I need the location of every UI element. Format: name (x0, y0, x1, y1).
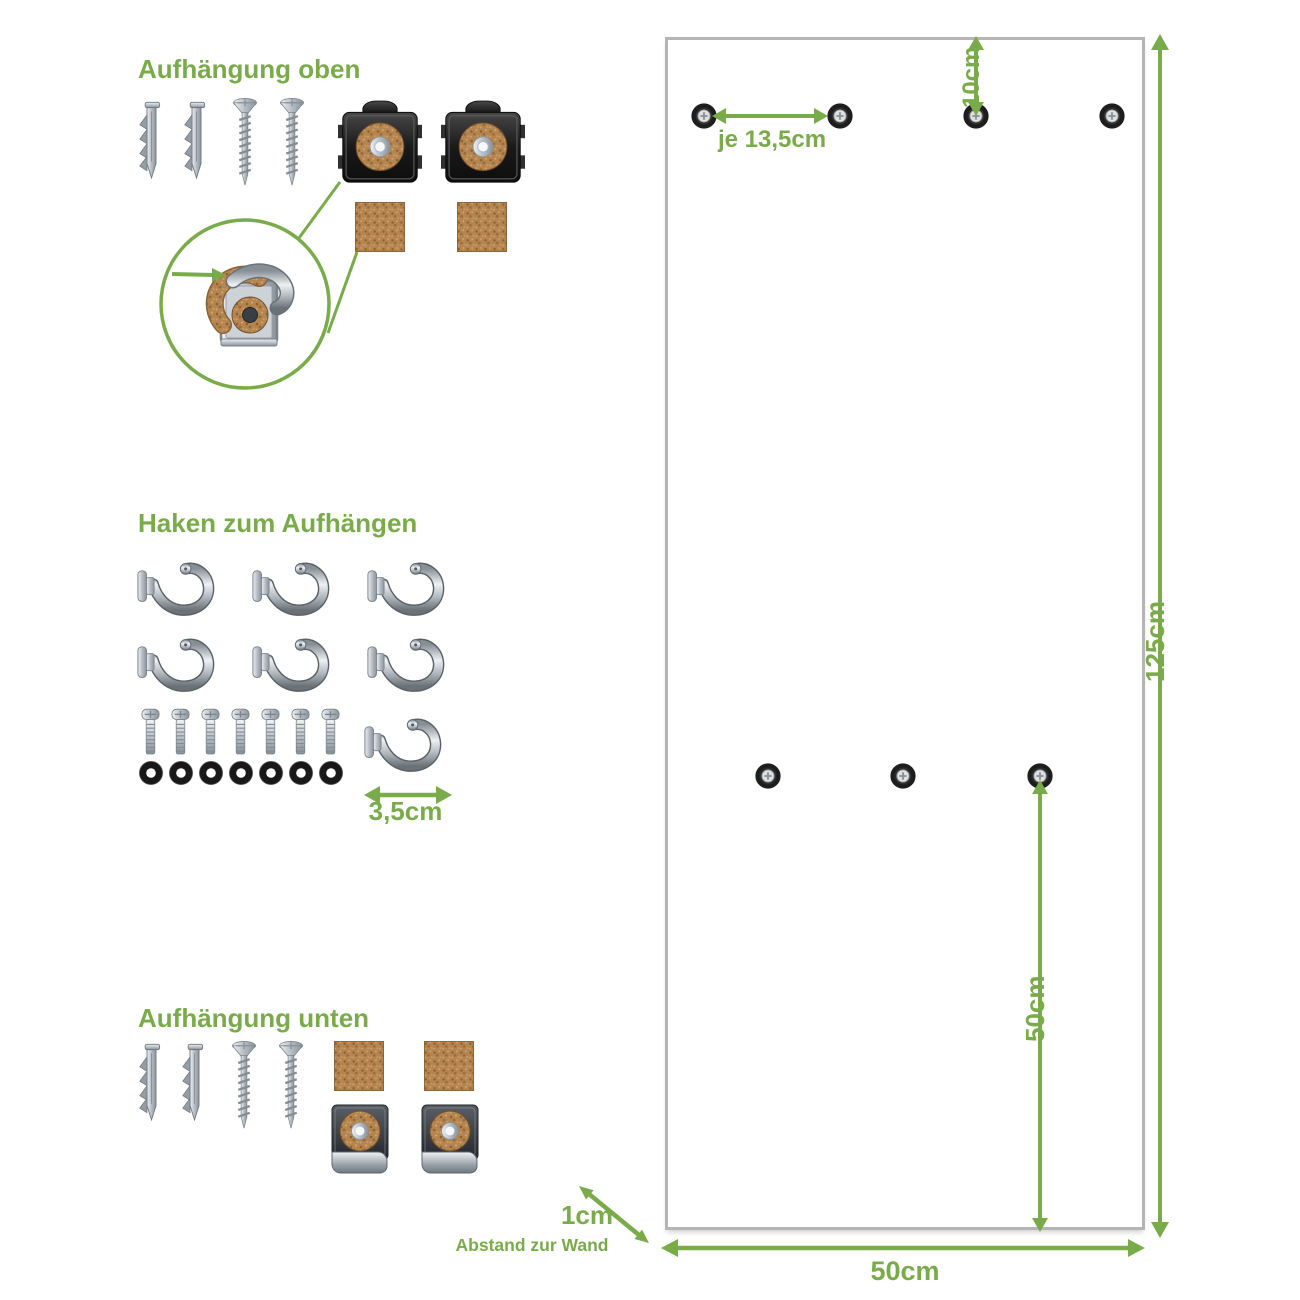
panel-outline (665, 37, 1145, 1230)
panel-height-label: 125cm (1142, 601, 1168, 682)
wood-screw-icon (278, 1040, 304, 1132)
panel-width-label: 50cm (845, 1258, 965, 1285)
machine-bolt-icon (260, 708, 281, 758)
hook-icon (251, 633, 335, 695)
o-ring-icon (318, 760, 344, 786)
top-offset-label: 10cm (960, 47, 984, 108)
hook-width-label: 3,5cm (358, 798, 453, 824)
mounting-clip-bottom-icon (419, 1104, 481, 1180)
section-title-top-mount: Aufhängung oben (138, 55, 360, 84)
wall-gap-value: 1cm (557, 1202, 617, 1228)
machine-bolt-icon (290, 708, 311, 758)
installation-diagram: Aufhängung oben Haken zum Aufhängen (0, 0, 1300, 1300)
o-ring-icon (168, 760, 194, 786)
section-title-hooks: Haken zum Aufhängen (138, 509, 417, 538)
wood-screw-icon (231, 1040, 257, 1132)
cork-pad-icon (334, 1041, 384, 1091)
machine-bolt-icon (140, 708, 161, 758)
hook-icon (136, 557, 220, 619)
drill-hole-icon (754, 762, 782, 790)
hook-icon (366, 557, 450, 619)
mounting-clip-top-icon (441, 100, 525, 184)
middle-hole-height-label: 50cm (1022, 976, 1048, 1043)
drill-hole-icon (889, 762, 917, 790)
o-ring-icon (138, 760, 164, 786)
machine-bolt-icon (320, 708, 341, 758)
drill-hole-icon (1098, 102, 1126, 130)
o-ring-icon (288, 760, 314, 786)
hook-icon (363, 713, 447, 775)
wall-plug-icon (138, 1041, 165, 1125)
section-title-bottom-mount: Aufhängung unten (138, 1004, 369, 1033)
wall-plug-icon (181, 1041, 208, 1125)
hook-icon (251, 557, 335, 619)
mounting-clip-bottom-icon (329, 1104, 391, 1180)
cork-pad-icon (424, 1041, 474, 1091)
cork-pad-icon (457, 202, 507, 252)
drill-hole-icon (826, 102, 854, 130)
o-ring-icon (198, 760, 224, 786)
wall-gap-caption: Abstand zur Wand (446, 1237, 618, 1255)
hook-icon (366, 633, 450, 695)
o-ring-icon (228, 760, 254, 786)
machine-bolt-icon (230, 708, 251, 758)
machine-bolt-icon (200, 708, 221, 758)
hole-spacing-label: je 13,5cm (712, 128, 832, 152)
o-ring-icon (258, 760, 284, 786)
machine-bolt-icon (170, 708, 191, 758)
hook-icon (136, 633, 220, 695)
detail-pointer-arrow-icon (168, 264, 230, 284)
